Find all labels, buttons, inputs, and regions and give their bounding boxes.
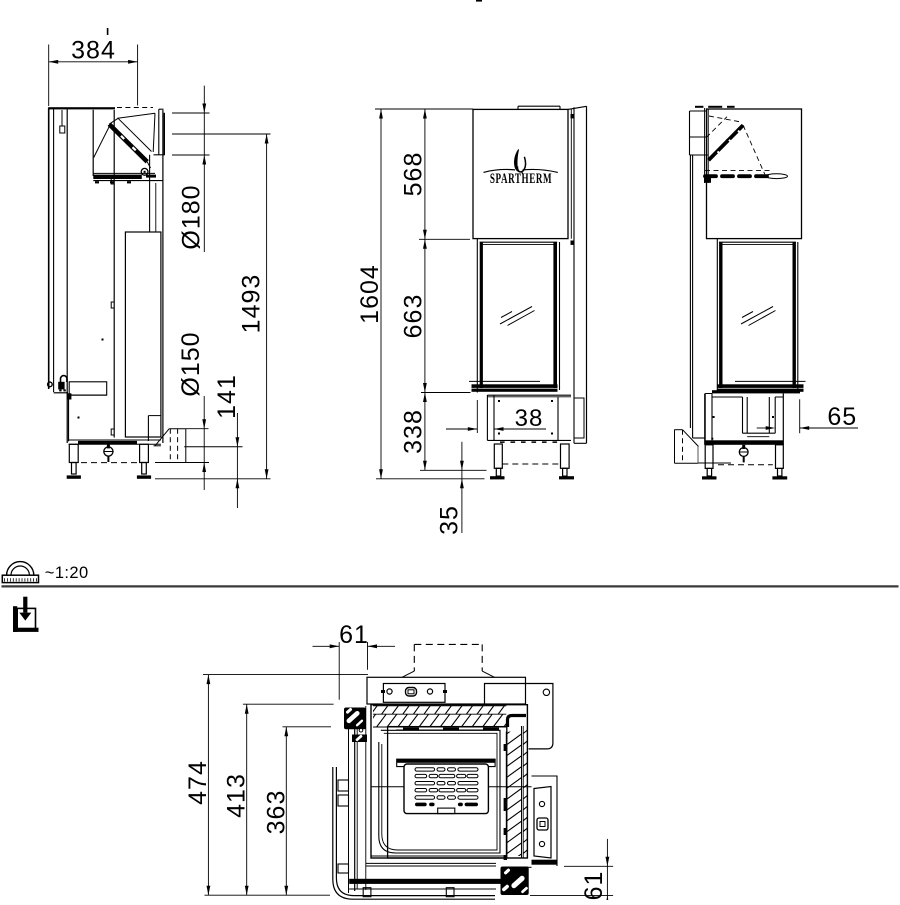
- svg-text:SPARTHERM: SPARTHERM: [490, 170, 552, 187]
- svg-text:35: 35: [435, 505, 463, 535]
- svg-text:384: 384: [71, 36, 116, 64]
- svg-text:363: 363: [262, 790, 290, 835]
- svg-text:1493: 1493: [237, 274, 265, 334]
- svg-text:38: 38: [515, 405, 544, 432]
- svg-text:663: 663: [399, 294, 427, 339]
- svg-text:Ø180: Ø180: [177, 184, 205, 249]
- svg-text:474: 474: [184, 760, 212, 805]
- svg-text:413: 413: [223, 773, 251, 818]
- svg-text:Ø150: Ø150: [177, 331, 205, 396]
- svg-text:61: 61: [580, 871, 608, 900]
- svg-text:61: 61: [339, 621, 369, 649]
- svg-text:1604: 1604: [356, 264, 384, 324]
- svg-text:338: 338: [399, 409, 427, 454]
- svg-text:~1:20: ~1:20: [45, 564, 89, 582]
- svg-text:65: 65: [827, 403, 857, 431]
- svg-text:568: 568: [399, 152, 427, 197]
- svg-text:141: 141: [213, 374, 241, 419]
